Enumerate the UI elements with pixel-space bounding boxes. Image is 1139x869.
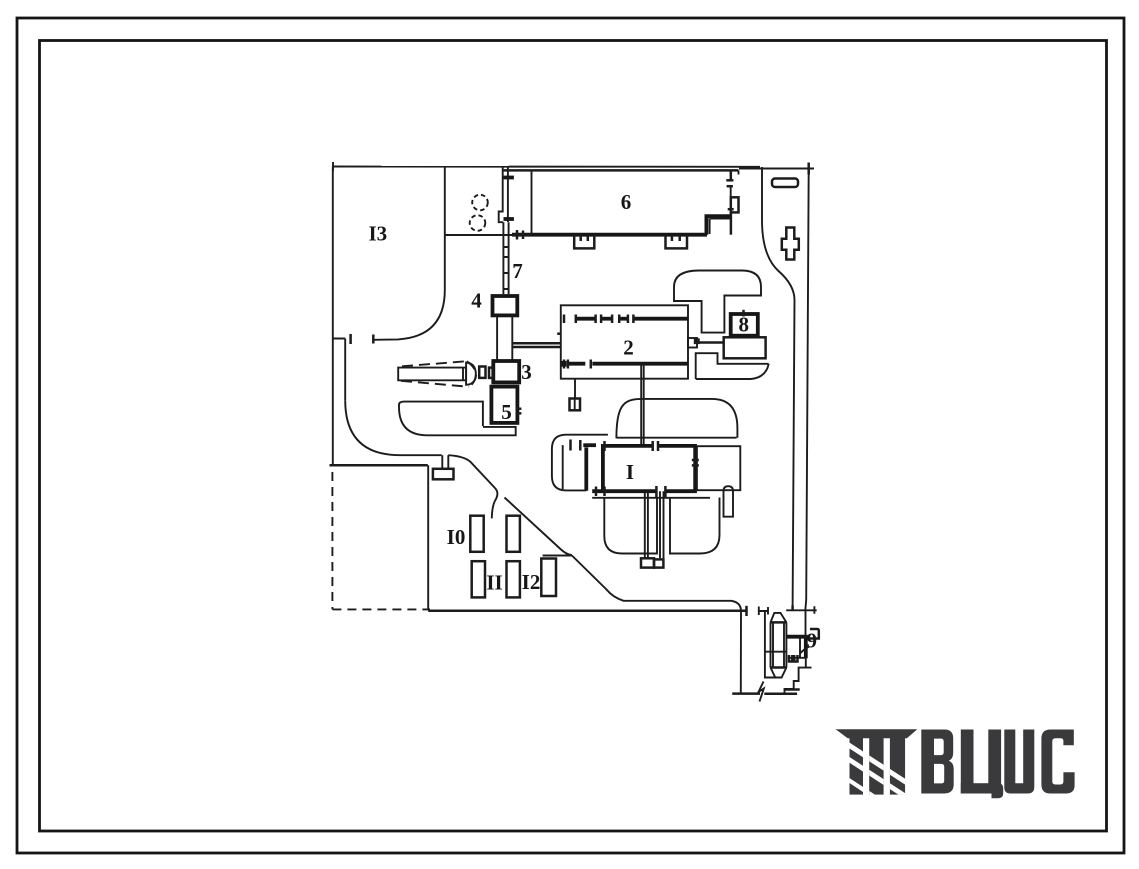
svg-text:6: 6 (621, 190, 632, 214)
svg-text:8: 8 (739, 313, 750, 337)
svg-text:5: 5 (501, 400, 512, 424)
svg-text:9: 9 (807, 629, 818, 653)
svg-text:3: 3 (521, 360, 532, 384)
svg-text:I2: I2 (522, 570, 541, 594)
svg-text:I0: I0 (447, 525, 466, 549)
svg-text:II: II (486, 571, 502, 595)
svg-text:7: 7 (512, 259, 523, 283)
svg-text:I3: I3 (368, 222, 387, 246)
svg-text:4: 4 (471, 289, 482, 313)
svg-text:2: 2 (623, 336, 634, 360)
svg-text:I: I (626, 460, 634, 484)
